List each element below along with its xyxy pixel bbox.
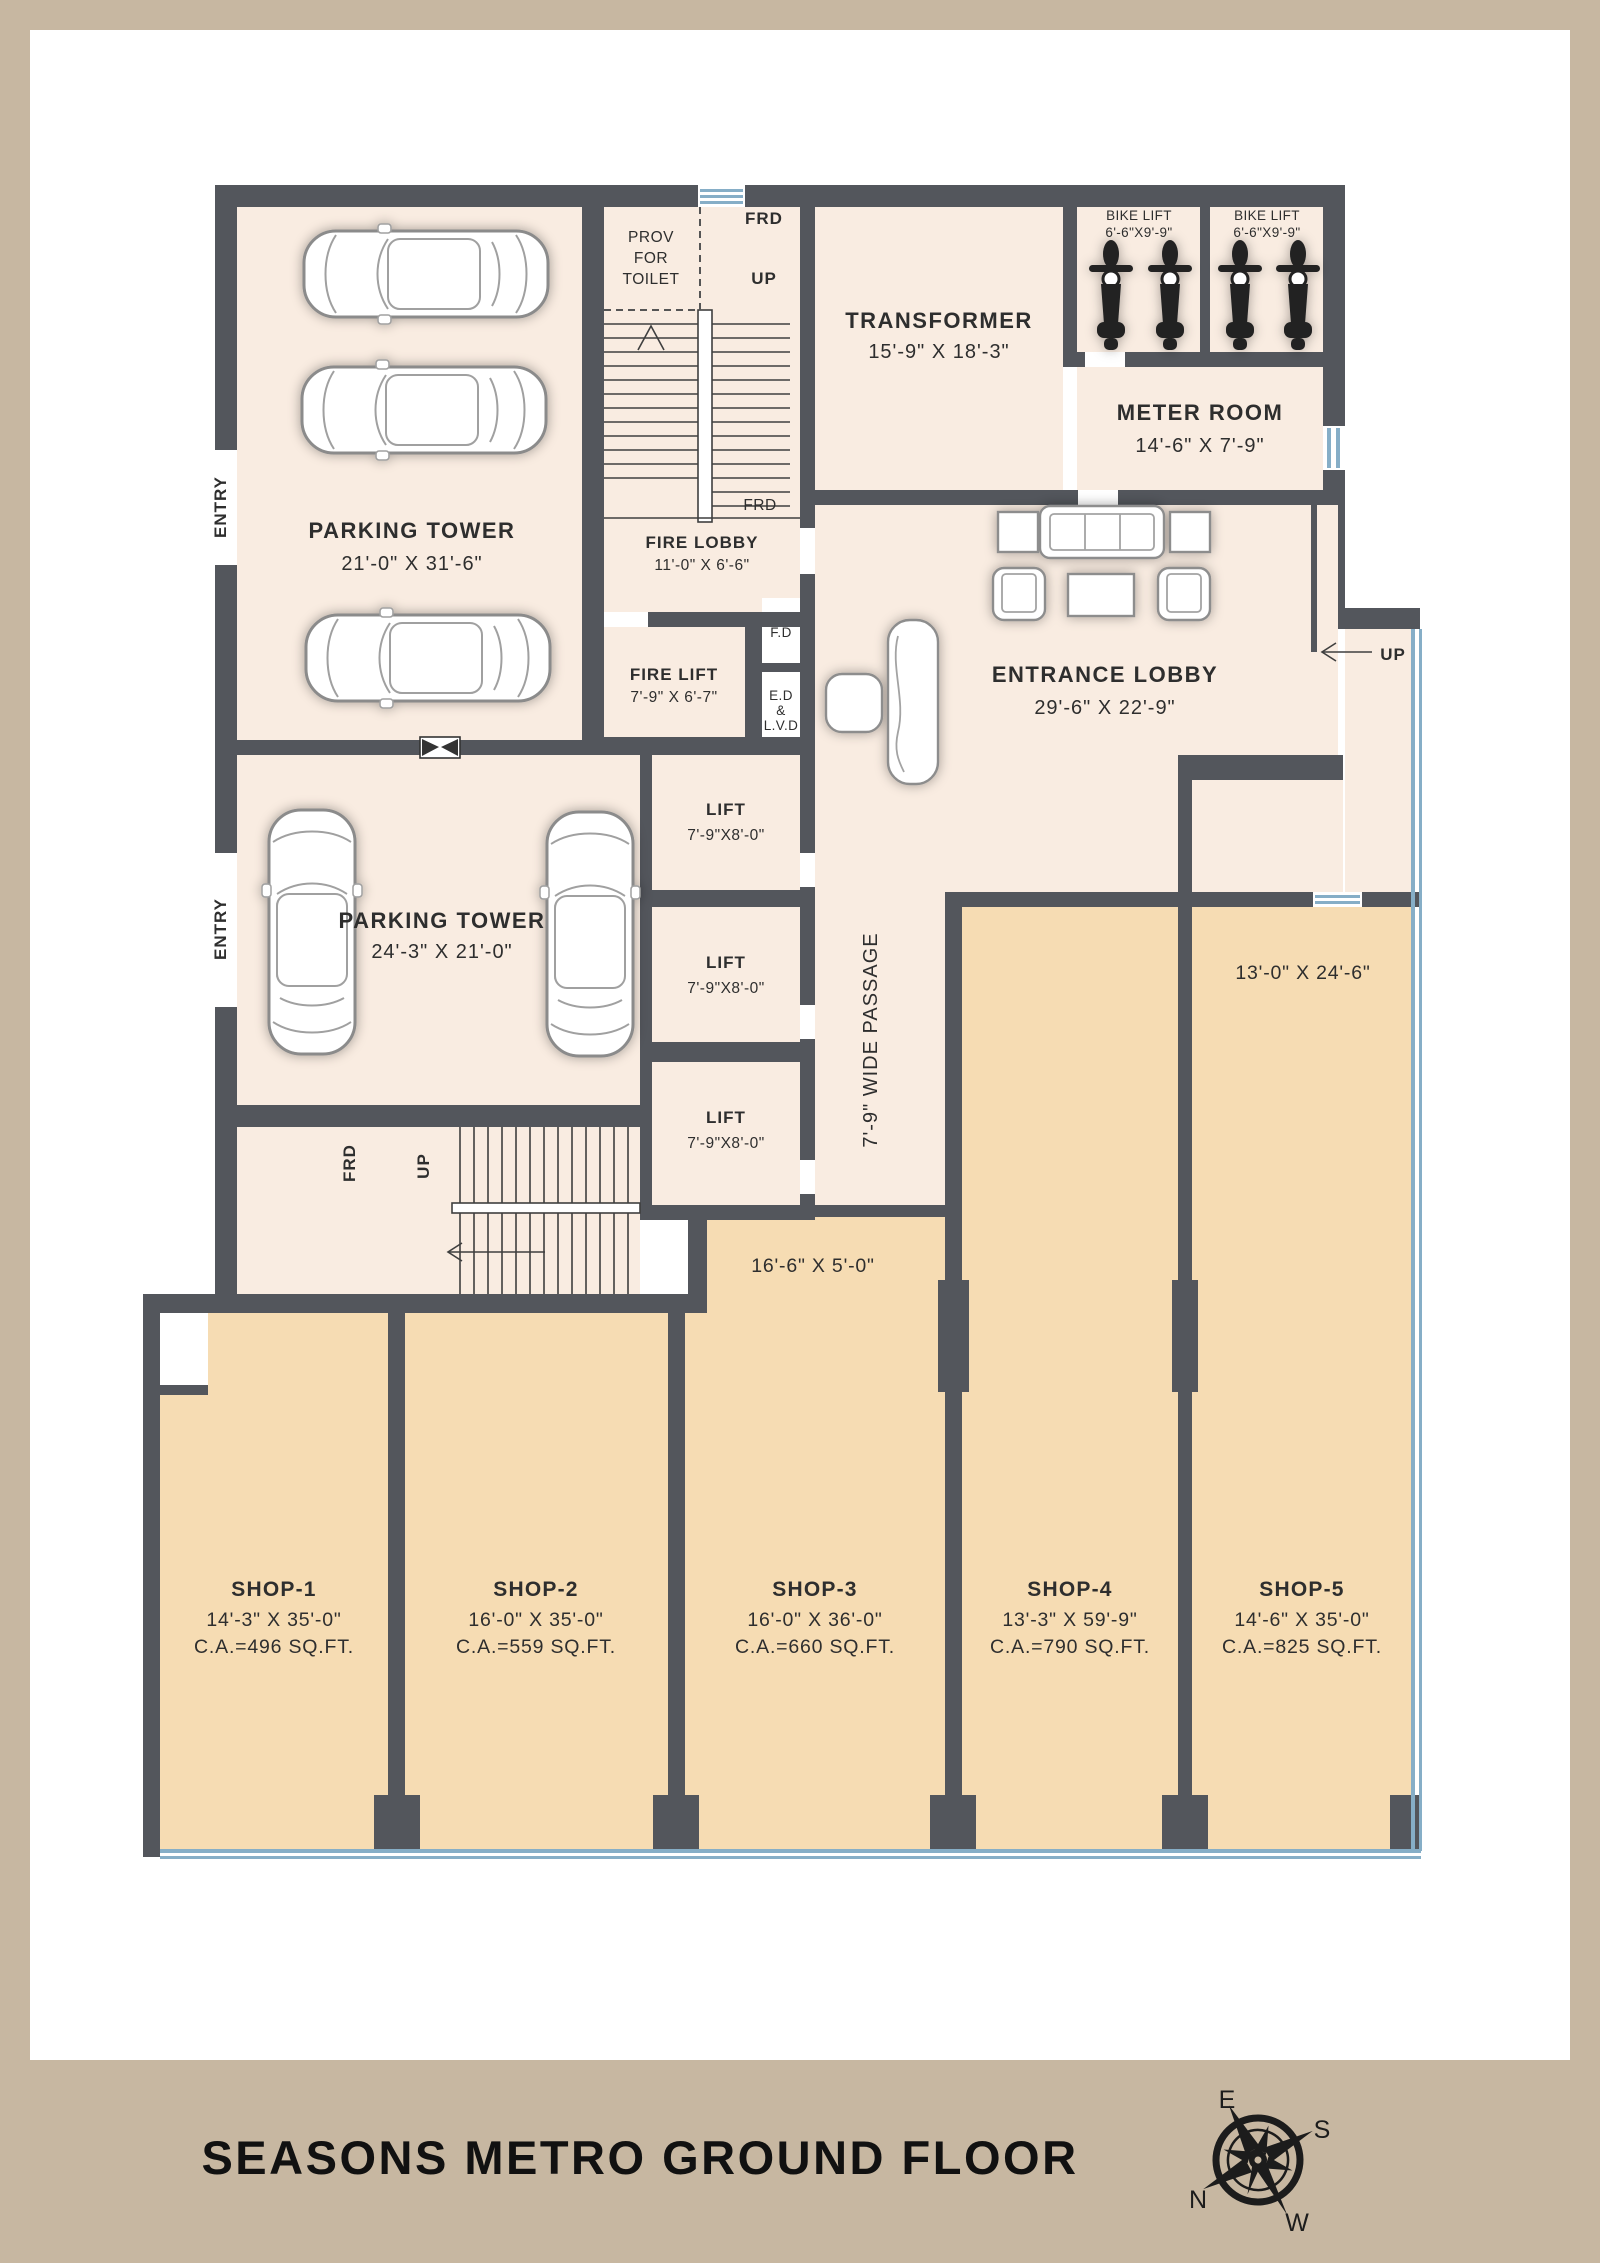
bike-lift-1-label: BIKE LIFT bbox=[1106, 208, 1172, 223]
shop5-top-window bbox=[1313, 892, 1362, 907]
compass-north-label: N bbox=[1189, 2186, 1207, 2214]
parking-tower-2-dims: 24'-3" X 21'-0" bbox=[371, 941, 512, 963]
toilet-label-1: PROV bbox=[628, 229, 674, 246]
fire-lobby-label: FIRE LOBBY bbox=[646, 533, 759, 552]
up-bottom-label: UP bbox=[414, 1153, 433, 1179]
fire-lift-dims: 7'-9" X 6'-7" bbox=[630, 689, 717, 706]
desk-chair bbox=[826, 674, 882, 732]
toilet-label-3: TOILET bbox=[623, 271, 680, 288]
compass-south-label: S bbox=[1314, 2116, 1331, 2144]
lift-3-label: LIFT bbox=[706, 1108, 746, 1127]
shop5-porch-floor bbox=[1192, 780, 1343, 892]
meter-room-label: METER ROOM bbox=[1117, 400, 1284, 425]
entry-1-label: ENTRY bbox=[211, 476, 230, 538]
shop-4-name: SHOP-4 bbox=[1027, 1578, 1112, 1601]
lift-1-dims: 7'-9"X8'-0" bbox=[687, 827, 765, 844]
shop-1-recess bbox=[160, 1313, 208, 1385]
shop-4-floor bbox=[962, 907, 1178, 1849]
frd-top-label: FRD bbox=[745, 209, 783, 228]
shop-4-area: C.A.=790 SQ.FT. bbox=[990, 1636, 1150, 1658]
lift-1-door-gap bbox=[800, 853, 815, 887]
shop-1-dims: 14'-3" X 35'-0" bbox=[206, 1609, 341, 1631]
lift-3-floor bbox=[652, 1062, 800, 1205]
lift-2-label: LIFT bbox=[706, 953, 746, 972]
shop-5-floor bbox=[1192, 907, 1413, 1849]
shop-1-area: C.A.=496 SQ.FT. bbox=[194, 1636, 354, 1658]
lift-1-label: LIFT bbox=[706, 800, 746, 819]
up-top-label: UP bbox=[751, 269, 777, 288]
bike-lift-2-label: BIKE LIFT bbox=[1234, 208, 1300, 223]
up-lobby-label: UP bbox=[1380, 645, 1406, 664]
compass-east-label: E bbox=[1219, 2086, 1236, 2114]
lift-2-dims: 7'-9"X8'-0" bbox=[687, 980, 765, 997]
frd-mid-label: FRD bbox=[743, 497, 776, 514]
reception-desk bbox=[888, 620, 938, 784]
armchair bbox=[993, 568, 1045, 620]
entrance-lobby-dims: 29'-6" X 22'-9" bbox=[1034, 697, 1175, 719]
floor-plan-drawing: PARKING TOWER 21'-0" X 31'-6" PARKING TO… bbox=[0, 0, 1600, 2263]
shop-3-front-dims: 16'-6" X 5'-0" bbox=[751, 1255, 875, 1277]
floor-plan-sheet: PARKING TOWER 21'-0" X 31'-6" PARKING TO… bbox=[0, 0, 1600, 2263]
shop-3-name: SHOP-3 bbox=[772, 1578, 857, 1601]
shop-1-name: SHOP-1 bbox=[231, 1578, 316, 1601]
shop-4-dims: 13'-3" X 59'-9" bbox=[1002, 1609, 1137, 1631]
toilet-label-2: FOR bbox=[634, 250, 668, 267]
stair-rail bbox=[452, 1203, 640, 1213]
lobby-right-floor bbox=[1345, 629, 1411, 892]
shop-2-area: C.A.=559 SQ.FT. bbox=[456, 1636, 616, 1658]
ed-shaft-label-3: L.V.D bbox=[764, 718, 799, 733]
compass-west-label: W bbox=[1285, 2209, 1309, 2237]
entry-2-label: ENTRY bbox=[211, 898, 230, 960]
meter-room-floor bbox=[1077, 367, 1323, 490]
toilet-window bbox=[698, 185, 745, 207]
car bbox=[540, 812, 640, 1056]
bike-lift-1-dims: 6'-6"X9'-9" bbox=[1105, 225, 1172, 240]
meter-room-dims: 14'-6" X 7'-9" bbox=[1135, 435, 1264, 457]
shop-3-dims: 16'-0" X 36'-0" bbox=[747, 1609, 882, 1631]
car bbox=[304, 224, 548, 324]
lift-2-floor bbox=[652, 907, 800, 1042]
meter-room-door-gap bbox=[1085, 352, 1125, 367]
parking-tower-2-label: PARKING TOWER bbox=[339, 908, 546, 933]
shop-5-upper-dims: 13'-0" X 24'-6" bbox=[1235, 962, 1370, 984]
transformer-dims: 15'-9" X 18'-3" bbox=[868, 341, 1009, 363]
fire-lobby-dims: 11'-0" X 6'-6" bbox=[654, 557, 749, 574]
side-table bbox=[1170, 512, 1210, 552]
sheet-title: SEASONS METRO GROUND FLOOR bbox=[201, 2131, 1078, 2184]
car bbox=[302, 360, 546, 460]
fd-shaft-label: F.D bbox=[770, 625, 791, 640]
fire-lift-label: FIRE LIFT bbox=[630, 665, 718, 684]
shop-5-area: C.A.=825 SQ.FT. bbox=[1222, 1636, 1382, 1658]
sofa bbox=[1040, 506, 1164, 558]
armchair bbox=[1158, 568, 1210, 620]
shop-5-dims: 14'-6" X 35'-0" bbox=[1234, 1609, 1369, 1631]
shop-2-dims: 16'-0" X 35'-0" bbox=[468, 1609, 603, 1631]
bike-lift-2-dims: 6'-6"X9'-9" bbox=[1233, 225, 1300, 240]
lift-3-dims: 7'-9"X8'-0" bbox=[687, 1135, 765, 1152]
meter-room-window bbox=[1323, 426, 1345, 470]
parking-tower-1-dims: 21'-0" X 31'-6" bbox=[341, 553, 482, 575]
transformer-label: TRANSFORMER bbox=[845, 308, 1033, 333]
car bbox=[306, 608, 550, 708]
shop-3-area: C.A.=660 SQ.FT. bbox=[735, 1636, 895, 1658]
stair-rail bbox=[698, 310, 712, 522]
shutter-door-symbol bbox=[420, 737, 460, 758]
frd-bottom-label: FRD bbox=[340, 1144, 359, 1182]
passage-label: 7'-9" WIDE PASSAGE bbox=[860, 932, 882, 1147]
lift-2-door-gap bbox=[800, 1005, 815, 1039]
shop-2-name: SHOP-2 bbox=[493, 1578, 578, 1601]
lift-1-floor bbox=[652, 755, 800, 890]
fire-lobby-door-gap bbox=[800, 528, 815, 574]
parking-tower-1-label: PARKING TOWER bbox=[309, 518, 516, 543]
shop-5-name: SHOP-5 bbox=[1259, 1578, 1344, 1601]
ed-shaft-label-2: & bbox=[776, 703, 785, 718]
side-table bbox=[998, 512, 1038, 552]
lift-3-door-gap bbox=[800, 1160, 815, 1194]
entrance-lobby-label: ENTRANCE LOBBY bbox=[992, 662, 1218, 687]
ed-shaft-label-1: E.D bbox=[769, 688, 793, 703]
coffee-table bbox=[1068, 574, 1134, 616]
